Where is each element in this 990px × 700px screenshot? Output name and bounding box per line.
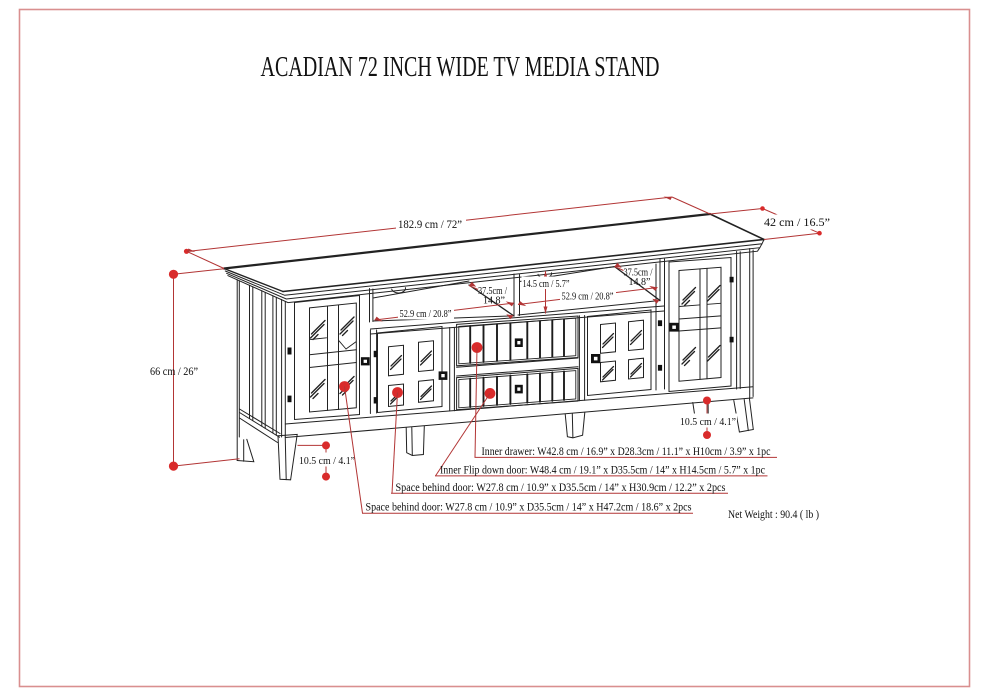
svg-text:Space behind door: W27.8 cm /: Space behind door: W27.8 cm / 10.9” x D3… — [396, 480, 726, 494]
svg-text:66 cm / 26”: 66 cm / 26” — [150, 366, 198, 378]
svg-text:Net Weight : 90.4 ( lb ): Net Weight : 90.4 ( lb ) — [728, 509, 819, 521]
svg-text:14.8”: 14.8” — [629, 276, 651, 288]
svg-text:14.5 cm / 5.7”: 14.5 cm / 5.7” — [523, 278, 570, 290]
svg-text:14.8”: 14.8” — [483, 295, 505, 307]
svg-text:182.9 cm / 72”: 182.9 cm / 72” — [398, 219, 462, 231]
svg-text:Space behind door: W27.8 cm /: Space behind door: W27.8 cm / 10.9” x D3… — [366, 500, 692, 514]
svg-text:Inner Flip down door: W48.4 cm: Inner Flip down door: W48.4 cm / 19.1” x… — [440, 463, 765, 477]
svg-text:52.9 cm / 20.8”: 52.9 cm / 20.8” — [400, 308, 452, 320]
svg-text:42 cm / 16.5”: 42 cm / 16.5” — [764, 217, 830, 229]
svg-text:10.5 cm / 4.1”: 10.5 cm / 4.1” — [299, 455, 355, 467]
svg-text:ACADIAN 72 INCH WIDE TV MEDIA: ACADIAN 72 INCH WIDE TV MEDIA STAND — [261, 51, 660, 83]
svg-text:52.9 cm / 20.8”: 52.9 cm / 20.8” — [562, 291, 614, 303]
svg-text:10.5 cm / 4.1”: 10.5 cm / 4.1” — [680, 416, 736, 428]
svg-text:Inner drawer: W42.8 cm / 16.9”: Inner drawer: W42.8 cm / 16.9” x D28.3cm… — [482, 444, 771, 458]
